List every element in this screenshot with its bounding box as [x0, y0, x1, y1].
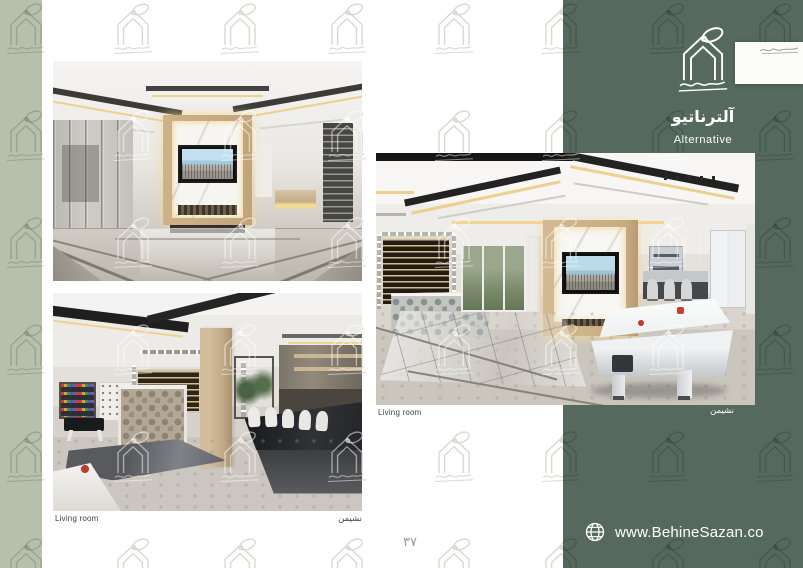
brand-watermark-icon — [4, 536, 42, 568]
tv-wall — [163, 115, 253, 225]
caption-living-room-center: Living room — [378, 408, 422, 417]
game-color-board — [59, 382, 96, 419]
house-logo-icon — [675, 24, 731, 93]
footer-website: www.BehineSazan.co — [585, 522, 764, 542]
brand-watermark-icon — [432, 429, 476, 483]
brand-watermark-icon — [563, 1, 583, 55]
brand-watermark-icon — [432, 536, 476, 568]
brand-watermark-icon — [753, 322, 797, 376]
brand-watermark-icon — [218, 536, 262, 568]
brand-watermark-icon — [646, 429, 690, 483]
portfolio-page: Living room نشیمن Living room نشیمن آلتر… — [0, 0, 803, 568]
signature-scribble-icon — [680, 82, 725, 86]
puck-pusher — [677, 307, 684, 314]
page-number: ۳۷ — [394, 535, 426, 550]
dining-chair — [247, 407, 261, 427]
sideboard — [275, 190, 315, 204]
brand-title-en: Alternative — [648, 134, 758, 146]
dining-chair — [282, 409, 294, 429]
caption-nashiman-center: نشیمن — [684, 406, 734, 416]
brand-watermark-icon — [111, 1, 155, 55]
brand-watermark-icon — [753, 429, 797, 483]
brand-watermark-icon — [563, 429, 583, 483]
brand-watermark-icon — [218, 1, 262, 55]
business-card — [735, 42, 803, 84]
caption-nashiman-bottom: نشیمن — [312, 514, 362, 524]
watermark-layer-sage — [0, 0, 42, 568]
tv-screen — [178, 145, 237, 184]
brand-watermark-icon — [325, 1, 369, 55]
dining-chair — [315, 410, 329, 430]
brand-watermark-icon — [563, 536, 583, 568]
living-room-render-3 — [376, 153, 755, 405]
air-hockey-table — [588, 294, 736, 400]
living-room-render-1 — [53, 61, 362, 281]
brand-watermark-icon — [4, 108, 42, 162]
tv-screen — [562, 252, 619, 294]
brand-watermark-icon — [325, 536, 369, 568]
card-signature-icon — [758, 45, 800, 55]
brand-watermark-icon — [753, 108, 797, 162]
brand-watermark-icon — [432, 1, 476, 55]
brand-title-fa: آلترناتیو — [648, 108, 758, 126]
dining-chair — [264, 407, 277, 427]
dining-chair — [298, 409, 311, 429]
caption-living-room-bottom: Living room — [55, 514, 99, 523]
website-url[interactable]: www.BehineSazan.co — [615, 524, 764, 541]
brand-watermark-icon — [4, 215, 42, 269]
globe-icon — [585, 522, 605, 542]
brand-watermark-icon — [753, 215, 797, 269]
living-room-render-2 — [53, 293, 362, 511]
sage-side-strip — [0, 0, 42, 568]
brand-watermark-icon — [4, 1, 42, 55]
brand-watermark-icon — [111, 536, 155, 568]
brand-watermark-icon — [4, 429, 42, 483]
brand-watermark-icon — [4, 322, 42, 376]
ceiling-beam — [376, 153, 573, 161]
